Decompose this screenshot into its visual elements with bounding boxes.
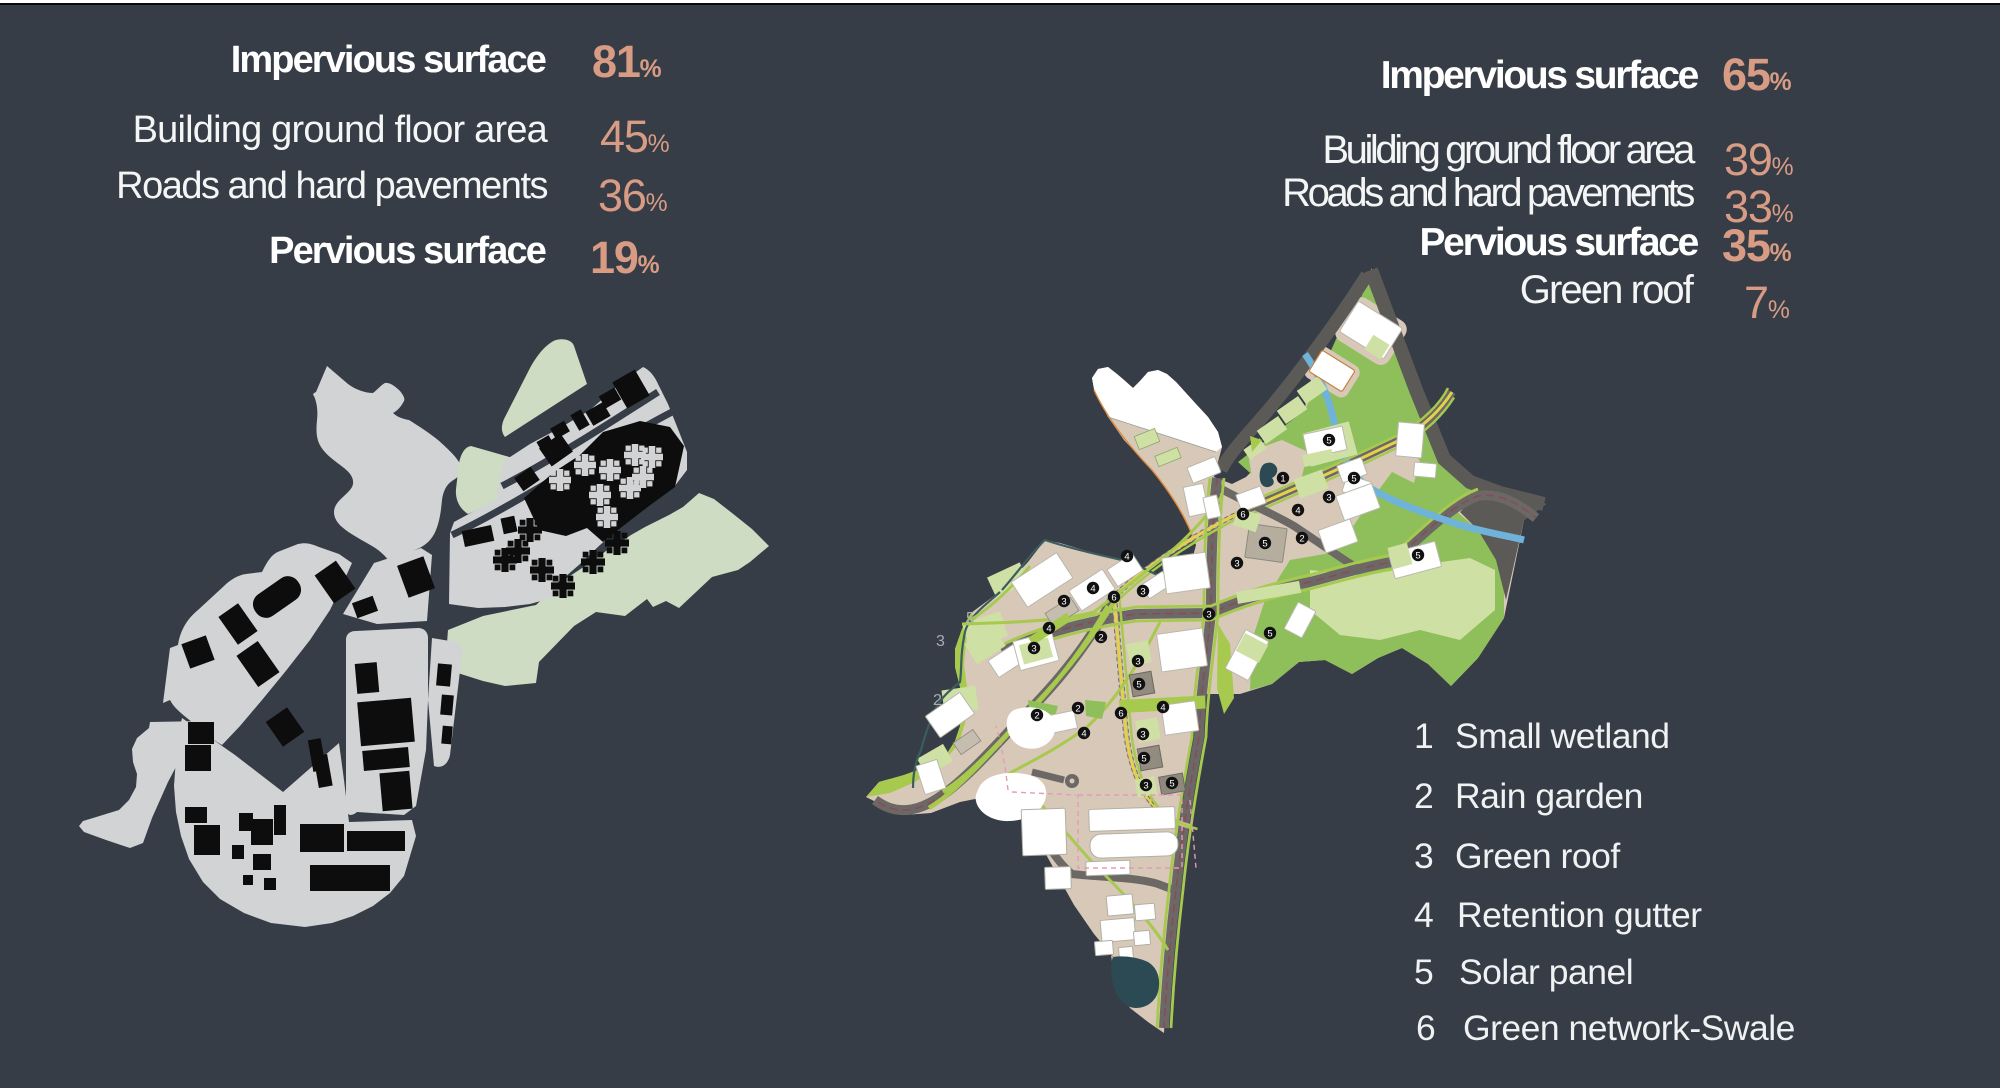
svg-text:3: 3	[1135, 656, 1140, 667]
svg-text:4: 4	[1124, 551, 1129, 562]
svg-text:5: 5	[1136, 679, 1141, 690]
svg-text:6: 6	[1240, 509, 1245, 520]
svg-text:5: 5	[966, 610, 975, 627]
svg-text:4: 4	[1090, 583, 1095, 594]
svg-text:3: 3	[1326, 492, 1331, 503]
svg-text:3: 3	[936, 633, 945, 650]
svg-text:5: 5	[1351, 473, 1356, 484]
svg-text:4: 4	[1046, 623, 1051, 634]
svg-text:3: 3	[1031, 643, 1036, 654]
svg-text:4: 4	[1081, 728, 1086, 739]
svg-text:5: 5	[1141, 753, 1146, 764]
svg-text:5: 5	[1262, 538, 1267, 549]
svg-text:2: 2	[1098, 632, 1103, 643]
svg-text:3: 3	[1061, 596, 1066, 607]
svg-text:5: 5	[1326, 435, 1331, 446]
svg-text:5: 5	[1415, 550, 1420, 561]
svg-text:5: 5	[1169, 778, 1174, 789]
svg-text:1: 1	[1280, 473, 1285, 484]
svg-text:3: 3	[1140, 586, 1145, 597]
svg-text:5: 5	[1267, 628, 1272, 639]
svg-text:6: 6	[1111, 592, 1116, 603]
svg-text:3: 3	[1140, 729, 1145, 740]
svg-text:3: 3	[1143, 780, 1148, 791]
svg-text:4: 4	[1295, 505, 1300, 516]
svg-text:2: 2	[1299, 533, 1304, 544]
svg-text:3: 3	[1206, 609, 1211, 620]
svg-text:4: 4	[1160, 702, 1165, 713]
svg-text:6: 6	[1118, 708, 1123, 719]
svg-text:3: 3	[1234, 558, 1239, 569]
svg-text:2: 2	[1075, 703, 1080, 714]
svg-text:2: 2	[1034, 710, 1039, 721]
svg-text:2: 2	[933, 692, 942, 709]
